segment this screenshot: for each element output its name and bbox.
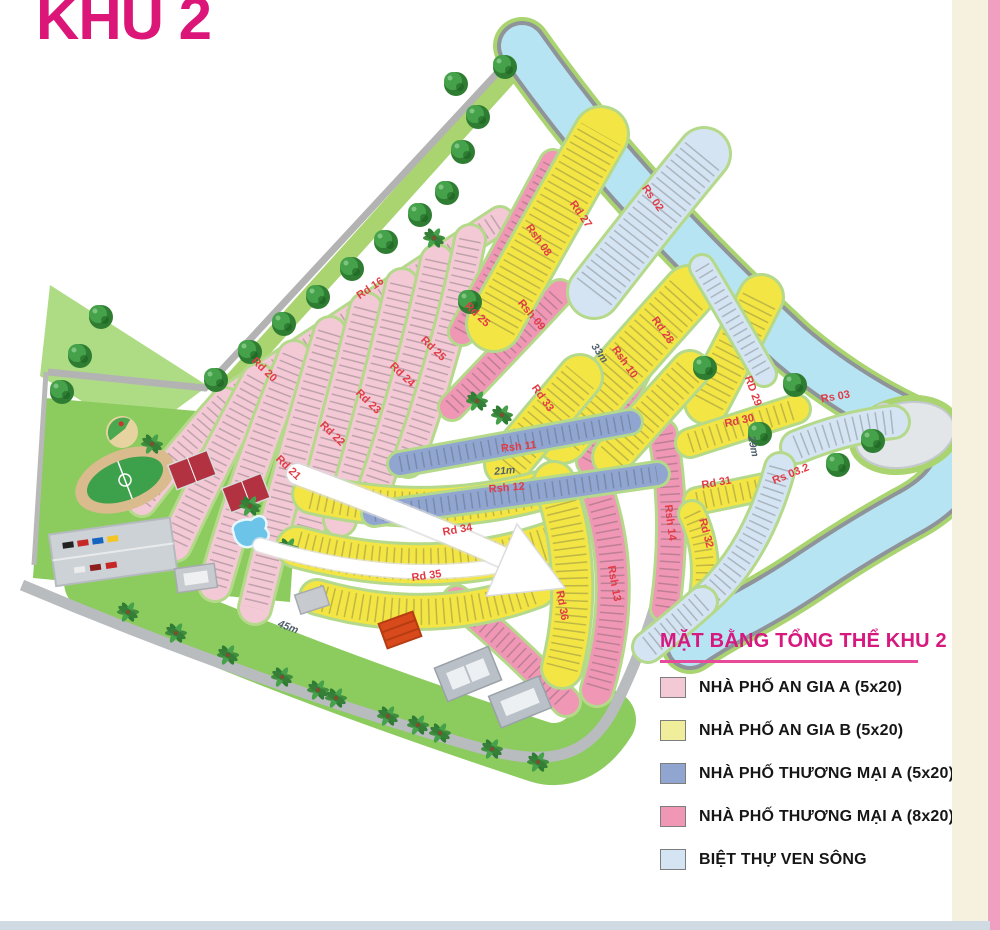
legend-item-biet-thu-ven-song: BIỆT THỰ VEN SÔNG <box>660 849 972 870</box>
tree-icon <box>50 380 74 404</box>
page-title: KHU 2 <box>36 0 211 53</box>
bottom-border <box>0 921 990 930</box>
legend-item-thuong-mai-5x20: NHÀ PHỐ THƯƠNG MẠI A (5x20) <box>660 763 972 784</box>
tree-icon <box>466 105 490 129</box>
tree-icon <box>444 72 468 96</box>
building <box>434 646 501 701</box>
legend-rule <box>660 660 918 663</box>
tree-icon <box>435 181 459 205</box>
tree-icon <box>204 368 228 392</box>
right-pink-border <box>988 0 1000 930</box>
legend-swatch-yellow <box>660 720 686 741</box>
legend-item-an-gia-a: NHÀ PHỐ AN GIA A (5x20) <box>660 677 972 698</box>
legend-item-label: NHÀ PHỐ AN GIA B (5x20) <box>699 722 903 740</box>
legend-item-label: NHÀ PHỐ THƯƠNG MẠI A (5x20) <box>699 765 954 783</box>
palm-icon <box>491 404 513 426</box>
tree-icon <box>408 203 432 227</box>
tree-icon <box>451 140 475 164</box>
legend: MẶT BẰNG TỔNG THỂ KHU 2 NHÀ PHỐ AN GIA A… <box>660 630 972 892</box>
building <box>175 563 218 592</box>
legend-swatch-blue <box>660 763 686 784</box>
tree-icon <box>493 55 517 79</box>
tree-icon <box>861 429 885 453</box>
tree-icon <box>783 373 807 397</box>
tree-icon <box>272 312 296 336</box>
legend-item-thuong-mai-8x20: NHÀ PHỐ THƯƠNG MẠI A (8x20) <box>660 806 972 827</box>
tree-icon <box>826 453 850 477</box>
tree-icon <box>340 257 364 281</box>
tree-icon <box>374 230 398 254</box>
legend-item-an-gia-b: NHÀ PHỐ AN GIA B (5x20) <box>660 720 972 741</box>
dimension-label-21m: 21m <box>493 464 516 478</box>
legend-title: MẶT BẰNG TỔNG THỂ KHU 2 <box>660 630 972 653</box>
legend-swatch-pink <box>660 677 686 698</box>
legend-swatch-dark-pink <box>660 806 686 827</box>
tree-icon <box>306 285 330 309</box>
tree-icon <box>693 356 717 380</box>
site-plan-page: Rd 16 Rd 20 Rd 21 Rd 22 Rd 23 Rd 24 Rd 2… <box>0 0 1000 930</box>
legend-swatch-light-blue <box>660 849 686 870</box>
tree-icon <box>89 305 113 329</box>
right-cream-strip <box>952 0 990 930</box>
legend-item-label: NHÀ PHỐ THƯƠNG MẠI A (8x20) <box>699 808 954 826</box>
legend-item-label: NHÀ PHỐ AN GIA A (5x20) <box>699 679 902 697</box>
tree-icon <box>68 344 92 368</box>
legend-item-label: BIỆT THỰ VEN SÔNG <box>699 851 867 869</box>
